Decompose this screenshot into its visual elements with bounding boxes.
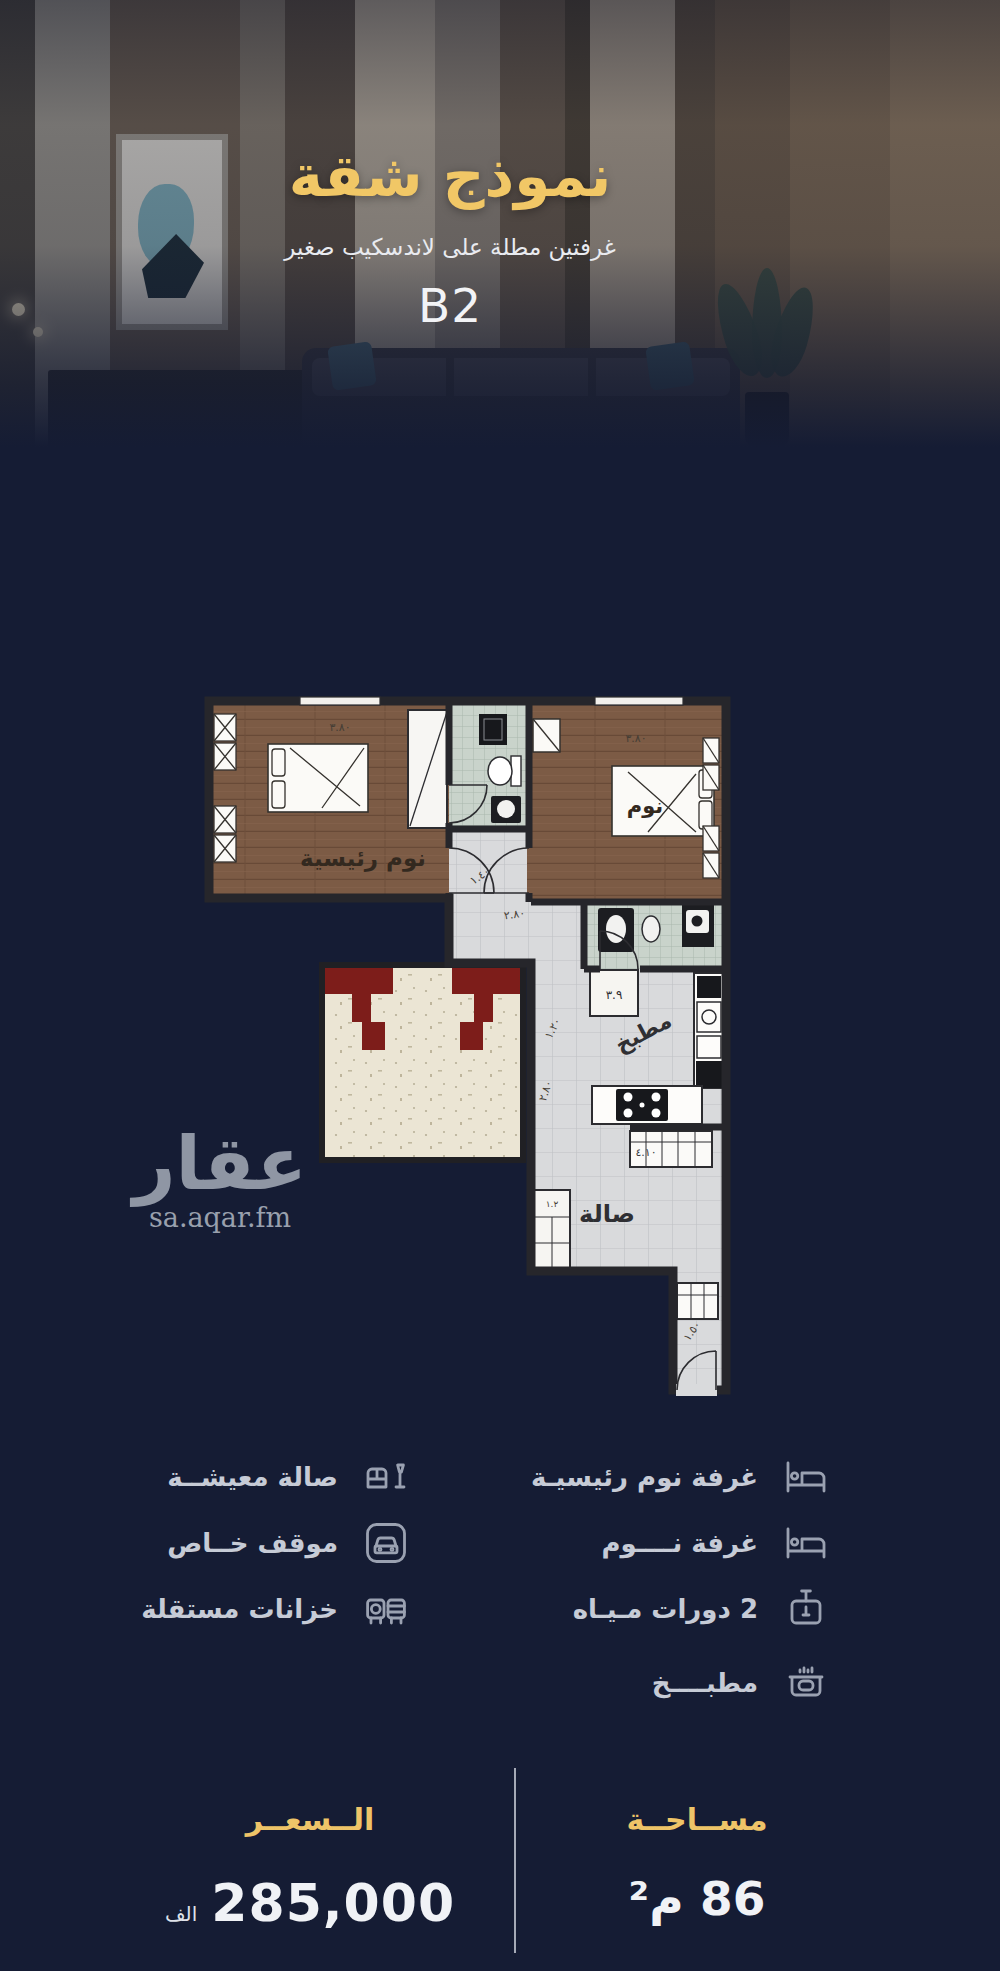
price-block: الــسعــر 285,000 الف	[110, 1802, 510, 1933]
feature-bedroom: غرفة نــــوم	[531, 1510, 830, 1576]
price-unit: الف	[165, 1902, 197, 1926]
summary-divider	[514, 1768, 516, 1953]
feature-label: غرفة نــــوم	[602, 1528, 758, 1558]
bed-icon	[782, 1519, 830, 1567]
feature-private-parking: موقف خــاص	[141, 1510, 410, 1576]
bidet	[642, 916, 660, 942]
entry-cabinet	[677, 1283, 718, 1319]
sofa-icon	[362, 1453, 410, 1501]
bed-icon	[782, 1453, 830, 1501]
hero-copy: نموذج شقة غرفتين مطلة على لاندسكيب صغير …	[170, 142, 730, 333]
car-icon	[362, 1519, 410, 1567]
price-label: الــسعــر	[110, 1802, 510, 1837]
hall-label: صالة	[579, 1200, 635, 1228]
stove-icon	[782, 1659, 830, 1707]
watermark-site: sa.aqar.fm	[130, 1202, 310, 1233]
wardrobe	[408, 710, 447, 828]
feature-label: غرفة نوم رئيسيـة	[531, 1462, 758, 1492]
feature-living-hall: صالة معيشــة	[141, 1444, 410, 1510]
unit-code: B2	[170, 278, 730, 333]
feature-bathrooms: 2 دورات مـيـاه	[531, 1576, 830, 1642]
feature-label: موقف خــاص	[167, 1528, 338, 1558]
feature-label: مطبــــخ	[652, 1668, 758, 1698]
features-right-column: غرفة نوم رئيسيـة غرفة نــــوم 2 دورات مـ…	[531, 1444, 830, 1716]
watermark-brand: عقار	[130, 1126, 310, 1200]
svg-text:٣.٨٠: ٣.٨٠	[329, 721, 350, 734]
floor-plan: نوم رئيسية نوم مطبخ صالة ٣.٨٠ ٣.٨٠ ٢.٨٠ …	[150, 690, 750, 1400]
svg-text:٣.٩: ٣.٩	[606, 988, 623, 1002]
tanks-icon	[362, 1585, 410, 1633]
basin-icon	[782, 1585, 830, 1633]
sink	[692, 916, 703, 927]
area-value: 86 م²	[522, 1871, 872, 1926]
feature-kitchen: مطبــــخ	[531, 1650, 830, 1716]
apartment-flyer: نموذج شقة غرفتين مطلة على لاندسكيب صغير …	[0, 0, 1000, 1971]
master-bedroom-label: نوم رئيسية	[300, 845, 426, 872]
price-value: 285,000	[211, 1873, 455, 1933]
hero-photo: نموذج شقة غرفتين مطلة على لاندسكيب صغير …	[0, 0, 1000, 447]
watermark: عقار sa.aqar.fm	[130, 1126, 310, 1233]
key-plan	[322, 965, 523, 1160]
page-title: نموذج شقة	[170, 142, 730, 210]
bedroom-label: نوم	[627, 794, 663, 818]
feature-label: صالة معيشــة	[167, 1462, 338, 1492]
feature-label: 2 دورات مـيـاه	[573, 1594, 758, 1624]
price-line: 285,000 الف	[110, 1873, 510, 1933]
svg-text:٣.٨٠: ٣.٨٠	[625, 732, 646, 745]
page-subtitle: غرفتين مطلة على لاندسكيب صغير	[170, 234, 730, 260]
feature-water-tanks: خزانات مستقلة	[141, 1576, 410, 1642]
features-left-column: صالة معيشــة موقف خــاص خزانات مستقلة	[141, 1444, 410, 1642]
feature-label: خزانات مستقلة	[141, 1594, 338, 1624]
svg-text:١.٢: ١.٢	[546, 1199, 559, 1209]
feature-master-bedroom: غرفة نوم رئيسيـة	[531, 1444, 830, 1510]
kitchen-sink	[697, 1002, 721, 1032]
area-label: مســاحــة	[522, 1802, 872, 1837]
area-block: مســاحــة 86 م²	[522, 1802, 872, 1926]
svg-text:٤.١٠: ٤.١٠	[635, 1146, 656, 1159]
entrance-opening	[676, 1384, 717, 1396]
